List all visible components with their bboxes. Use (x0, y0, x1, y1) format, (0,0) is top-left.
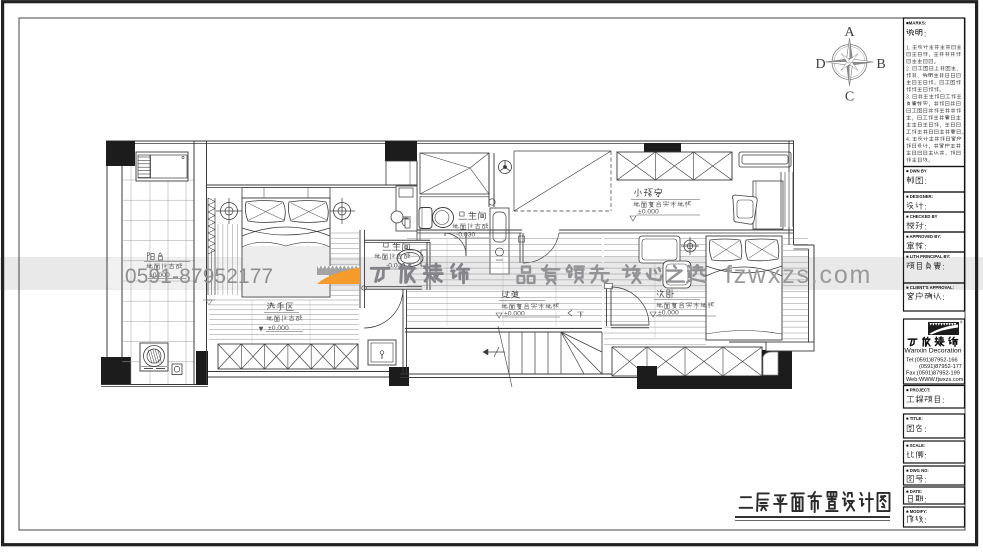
svg-text:.: . (909, 95, 910, 101)
svg-text::: : (924, 202, 926, 211)
svg-text:B: B (876, 57, 885, 72)
svg-text:C: C (845, 90, 854, 105)
svg-text::: : (924, 222, 926, 231)
svg-text::: : (942, 396, 944, 405)
svg-text::: : (924, 30, 926, 39)
svg-text:±0.000: ±0.000 (504, 311, 525, 318)
svg-text:■ APPROVED BY:: ■ APPROVED BY: (906, 234, 941, 239)
svg-text::: : (924, 177, 926, 186)
svg-text:，: ， (928, 144, 933, 150)
svg-text:0591-87952177: 0591-87952177 (125, 265, 273, 288)
svg-text::: : (924, 451, 926, 460)
svg-text:.: . (909, 137, 910, 143)
svg-text:■ SCALE:: ■ SCALE: (906, 443, 925, 448)
svg-text::: : (924, 475, 926, 484)
svg-text:■ DWN BY: ■ DWN BY (906, 169, 927, 174)
svg-text:■ MODIFY:: ■ MODIFY: (906, 509, 927, 514)
svg-text:，: ， (928, 102, 933, 108)
svg-text:■ DESIGNER:: ■ DESIGNER: (906, 194, 933, 199)
svg-text:±0.000: ±0.000 (658, 310, 679, 317)
svg-text::: : (924, 425, 926, 434)
svg-text:±0.000: ±0.000 (638, 209, 659, 216)
svg-text:，: ， (939, 123, 944, 129)
svg-text:®: ® (960, 321, 963, 325)
svg-text:，: ， (934, 81, 939, 87)
svg-text:，: ， (912, 116, 917, 122)
svg-text:Tel:(0591)87952-166: Tel:(0591)87952-166 (906, 358, 958, 364)
svg-text:■ DATE:: ■ DATE: (906, 489, 922, 494)
svg-text:fzwxzs.com: fzwxzs.com (725, 261, 872, 289)
svg-text:A: A (844, 25, 855, 40)
svg-text:.: . (909, 45, 910, 51)
svg-text:。: 。 (962, 130, 967, 136)
svg-text::: : (924, 242, 926, 251)
svg-text::: : (924, 516, 926, 525)
svg-text:Fax:(0591)87952-199: Fax:(0591)87952-199 (906, 371, 960, 377)
svg-text:■ CLIENT'S APPROVAL:: ■ CLIENT'S APPROVAL: (906, 285, 954, 290)
svg-text:(0591)87952-177: (0591)87952-177 (919, 364, 962, 370)
svg-text::: : (942, 293, 944, 302)
svg-text:.: . (909, 67, 910, 73)
svg-text:，: ， (928, 52, 933, 58)
svg-text:。: 。 (934, 60, 939, 66)
svg-text:■ DWG NO:: ■ DWG NO: (906, 468, 929, 473)
svg-text:■MARKS:: ■MARKS: (906, 21, 927, 26)
svg-text:D: D (815, 57, 825, 72)
svg-text:。: 。 (928, 158, 933, 164)
svg-text:■ LITH PRINCIPAL BY:: ■ LITH PRINCIPAL BY: (906, 254, 950, 259)
svg-text:，: ， (945, 151, 950, 157)
svg-text:。: 。 (939, 88, 944, 94)
svg-text:Web:WWW.fjwxzs.com: Web:WWW.fjwxzs.com (906, 377, 964, 383)
svg-text:±0.000: ±0.000 (268, 325, 289, 332)
svg-text:■ PROJECT:: ■ PROJECT: (906, 388, 930, 393)
svg-text:、: 、 (917, 74, 922, 80)
svg-text::: : (924, 495, 926, 504)
svg-text:■ CHECKED BY: ■ CHECKED BY (906, 214, 938, 219)
svg-text::: : (942, 262, 944, 271)
svg-text:Wanxin Decoration: Wanxin Decoration (904, 348, 961, 355)
svg-text:、: 、 (956, 67, 961, 73)
svg-text:■ TITLE:: ■ TITLE: (906, 416, 923, 421)
